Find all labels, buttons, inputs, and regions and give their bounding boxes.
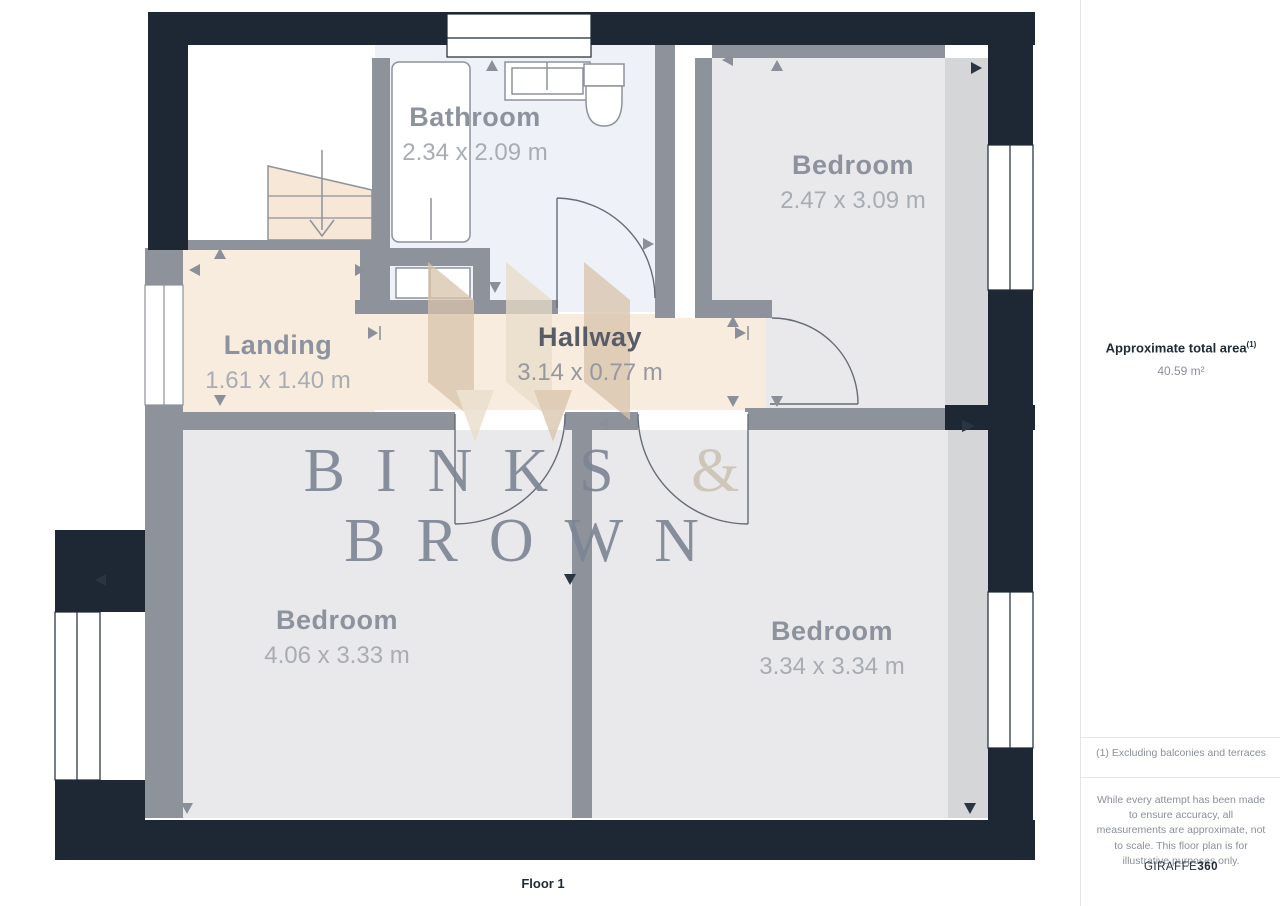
room-dimensions: 1.61 x 1.40 m xyxy=(205,367,350,395)
info-sidebar: Approximate total area(1) 40.59 m² (1) E… xyxy=(1080,0,1280,906)
watermark-name: BROWN xyxy=(344,507,730,575)
room-dimensions: 3.14 x 0.77 m xyxy=(517,359,662,387)
watermark-line-2: BROWN xyxy=(344,506,730,577)
floor-plan: Bathroom 2.34 x 2.09 m Bedroom 2.47 x 3.… xyxy=(0,0,1080,906)
floor-label: Floor 1 xyxy=(521,876,564,891)
toilet-tank xyxy=(584,64,624,86)
total-area-block: Approximate total area(1) 40.59 m² xyxy=(1081,340,1280,378)
room-dimensions: 4.06 x 3.33 m xyxy=(264,642,409,670)
room-label-landing: Landing 1.61 x 1.40 m xyxy=(205,330,350,395)
divider xyxy=(1081,777,1280,778)
watermark-name: BINKS xyxy=(304,437,645,505)
giraffe360-logo: GIRAFFE360 xyxy=(1081,861,1280,873)
wall-void xyxy=(675,45,695,318)
total-area-value: 40.59 m² xyxy=(1087,364,1275,378)
room-name: Bathroom xyxy=(402,102,547,133)
room-label-bathroom: Bathroom 2.34 x 2.09 m xyxy=(402,102,547,167)
room-name: Bedroom xyxy=(759,616,904,647)
room-name: Landing xyxy=(205,330,350,361)
room-label-bedroom-right: Bedroom 3.34 x 3.34 m xyxy=(759,616,904,681)
room-dimensions: 2.47 x 3.09 m xyxy=(780,187,925,215)
floorplan-page: Bathroom 2.34 x 2.09 m Bedroom 2.47 x 3.… xyxy=(0,0,1280,906)
area-footnote: (1) Excluding balconies and terraces xyxy=(1081,747,1280,759)
room-label-bedroom-left: Bedroom 4.06 x 3.33 m xyxy=(264,605,409,670)
room-dimensions: 3.34 x 3.34 m xyxy=(759,653,904,681)
watermark-line-1: BINKS & xyxy=(304,436,771,507)
room-name: Bedroom xyxy=(780,150,925,181)
total-area-title: Approximate total area(1) xyxy=(1087,340,1275,355)
footnote-marker: (1) xyxy=(1247,340,1257,349)
room-dimensions: 2.34 x 2.09 m xyxy=(402,139,547,167)
disclaimer-text: While every attempt has been made to ens… xyxy=(1081,793,1280,869)
room-label-bedroom-top: Bedroom 2.47 x 3.09 m xyxy=(780,150,925,215)
room-label-hallway: Hallway 3.14 x 0.77 m xyxy=(517,322,662,387)
room-name: Bedroom xyxy=(264,605,409,636)
divider xyxy=(1081,737,1280,738)
room-name: Hallway xyxy=(517,322,662,353)
staircase xyxy=(188,58,372,245)
toilet-bowl xyxy=(586,86,622,126)
watermark-ampersand: & xyxy=(691,437,770,505)
window-top xyxy=(447,14,591,57)
